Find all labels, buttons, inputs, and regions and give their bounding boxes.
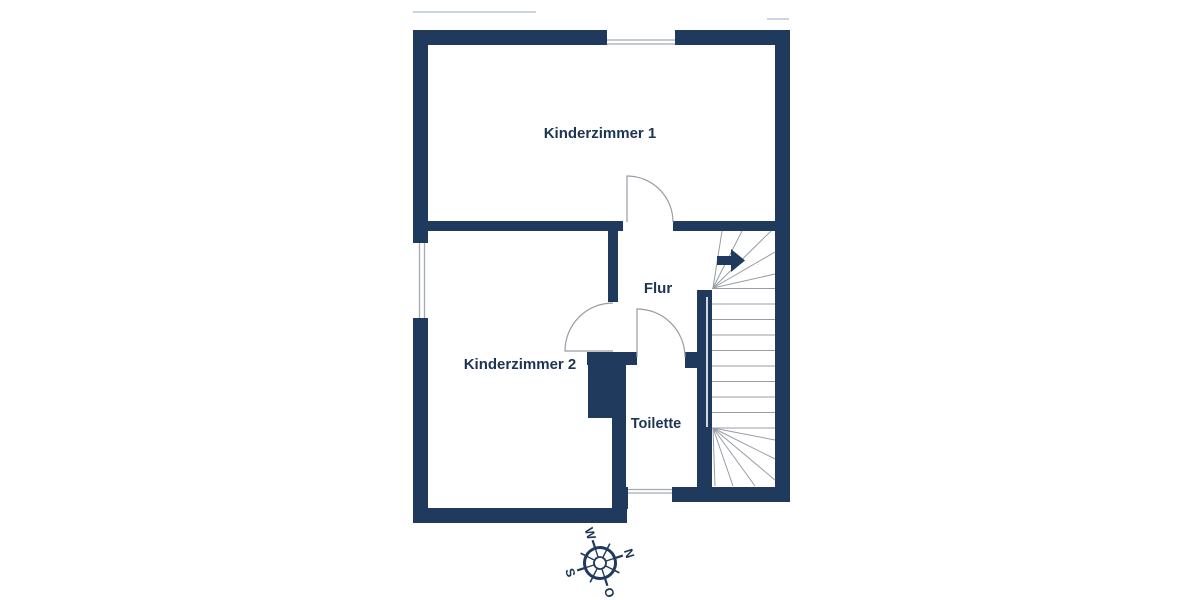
stair-winders-bottom: [713, 428, 775, 486]
floorplan-drawing: Kinderzimmer 1 Kinderzimmer 2 Flur Toile…: [0, 0, 1200, 600]
wall-divider-k1-right: [673, 221, 775, 231]
window-left: [420, 243, 425, 318]
room-label-kinderzimmer-2: Kinderzimmer 2: [464, 356, 577, 373]
doors: [565, 176, 685, 357]
wall-top-right: [675, 30, 790, 45]
wall-divider-k1-left: [428, 221, 623, 231]
compass-letter-south: S: [562, 567, 578, 579]
wall-left-upper: [413, 30, 428, 243]
room-label-kinderzimmer-1: Kinderzimmer 1: [544, 125, 657, 142]
wall-k2-toilette: [612, 352, 626, 508]
wall-k2-flur: [608, 229, 618, 302]
compass-letter-east: O: [601, 586, 617, 600]
door-kinderzimmer2: [565, 303, 613, 351]
wall-bottom-right: [672, 487, 790, 502]
wall-right: [775, 30, 790, 502]
room-label-flur: Flur: [644, 280, 672, 297]
compass-rose: N O S W: [552, 516, 647, 600]
wall-left-lower: [413, 318, 428, 523]
door-toilette: [637, 309, 685, 357]
compass-letter-north: N: [621, 547, 637, 560]
stair-direction-arrow-icon: [717, 249, 745, 272]
compass-letter-west: W: [581, 526, 598, 542]
wall-top-left: [413, 30, 607, 45]
wall-stairwell: [697, 290, 712, 502]
faint-crop-lines: [413, 12, 789, 19]
stair-treads: [712, 289, 775, 429]
window-top: [607, 40, 675, 44]
floorplan-canvas: Kinderzimmer 1 Kinderzimmer 2 Flur Toile…: [0, 0, 1200, 600]
room-label-toilette: Toilette: [631, 416, 681, 432]
door-kinderzimmer1: [627, 176, 673, 222]
window-toilette: [628, 490, 672, 494]
wall-bottom-kinderzimmer2: [413, 508, 627, 523]
staircase: [712, 231, 775, 486]
wall-column-toilette: [588, 352, 612, 418]
